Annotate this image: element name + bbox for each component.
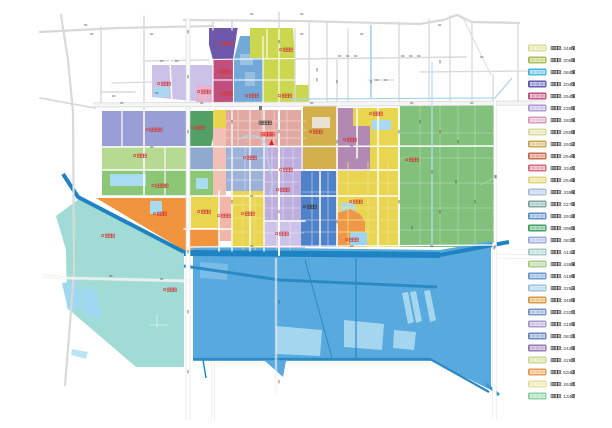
svg-text:: 4134: : 4134	[561, 250, 575, 256]
svg-text:: 2321: : 2321	[561, 310, 575, 316]
svg-text:: 3480: : 3480	[561, 298, 575, 304]
svg-text:: 2934: : 2934	[561, 142, 575, 148]
svg-text:: 4369: : 4369	[561, 262, 575, 268]
svg-text:: 3254: : 3254	[561, 286, 575, 292]
svg-text:: 2548: : 2548	[561, 178, 575, 184]
svg-text:: 3396: : 3396	[561, 190, 575, 196]
svg-text:: 2300: : 2300	[561, 106, 575, 112]
svg-text:: 2428: : 2428	[561, 346, 575, 352]
svg-text:: 2549: : 2549	[561, 154, 575, 160]
svg-text:: 1342: : 1342	[561, 394, 575, 400]
svg-text:: 3980: : 3980	[561, 226, 575, 232]
svg-text:: 3480: : 3480	[561, 46, 575, 52]
svg-text:: 4282: : 4282	[561, 358, 575, 364]
svg-text:: 3832: : 3832	[561, 238, 575, 244]
svg-text:: 3185: : 3185	[561, 322, 575, 328]
svg-text:: 2040: : 2040	[561, 82, 575, 88]
svg-text:: 2637: : 2637	[561, 382, 575, 388]
svg-text:: 2500: : 2500	[561, 130, 575, 136]
svg-text:: 5344: : 5344	[561, 370, 575, 376]
svg-text:: 2278: : 2278	[561, 202, 575, 208]
svg-text:: 2540: : 2540	[561, 94, 575, 100]
svg-text:: 2918: : 2918	[561, 214, 575, 220]
svg-text:: 3813: : 3813	[561, 334, 575, 340]
svg-text:: 3341: : 3341	[561, 166, 575, 172]
svg-text:: 4198: : 4198	[561, 274, 575, 280]
svg-text:: 3840: : 3840	[561, 70, 575, 76]
svg-text:: 3060: : 3060	[561, 58, 575, 64]
svg-text:: 2820: : 2820	[561, 118, 575, 124]
